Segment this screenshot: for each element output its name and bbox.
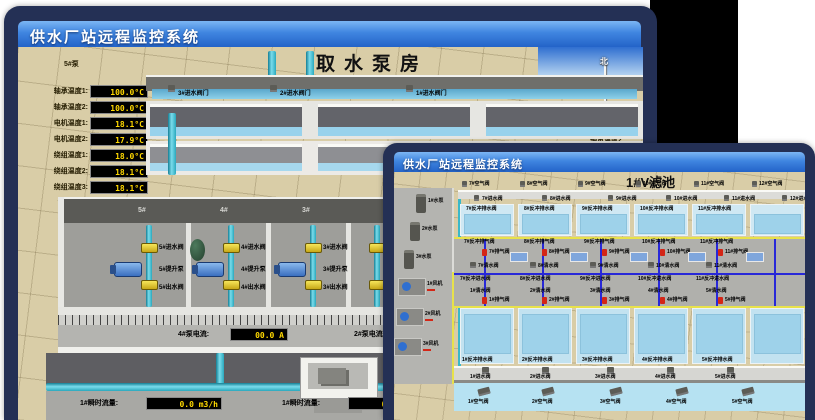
- air-valve-icon[interactable]: [462, 181, 467, 187]
- exhaust-lower-label: 4#排气阀: [667, 298, 688, 304]
- inlet-valve-label: 7#进水阀: [482, 197, 503, 203]
- filter-cell[interactable]: [576, 308, 630, 364]
- exhaust-valve-label: 7#排气阀: [489, 250, 510, 256]
- outlet-valve-icon[interactable]: [223, 280, 240, 290]
- gate-valve-icon[interactable]: [168, 85, 175, 92]
- exhaust-valve-icon[interactable]: [660, 249, 665, 256]
- bay-number: 5#: [138, 207, 146, 215]
- tank-icon: [570, 252, 588, 262]
- lift-pump-icon[interactable]: [278, 262, 306, 277]
- panel-row-value[interactable]: 100.0°C: [90, 85, 148, 98]
- air-valve-bottom-label: 3#空气阀: [600, 400, 621, 406]
- hall-pillar: [186, 223, 191, 307]
- backwash-exhaust-label: 10#反冲排气阀: [642, 240, 675, 246]
- compass-north-label: 北: [600, 56, 608, 67]
- air-valve-label: 12#空气阀: [759, 182, 782, 188]
- air-valve-bottom-label: 4#空气阀: [666, 400, 687, 406]
- hall-pillar: [346, 223, 351, 307]
- basin: [318, 104, 470, 127]
- panel-row-value[interactable]: 100.0°C: [90, 101, 148, 114]
- gallery-blue-riser: [774, 239, 776, 306]
- inlet-valve-icon[interactable]: [223, 243, 240, 253]
- inlet-valve-icon[interactable]: [141, 243, 158, 253]
- outlet-riser: [216, 353, 224, 387]
- gallery-yellow-pipe: [454, 237, 805, 239]
- exhaust-lower-icon[interactable]: [660, 297, 665, 304]
- inlet-valve-icon[interactable]: [782, 195, 787, 201]
- clean-water-lower-label: 1#清水阀: [470, 289, 491, 295]
- clean-water-valve-icon[interactable]: [706, 262, 712, 268]
- clean-water-valve-label: 9#清水阀: [598, 264, 619, 270]
- flow-readout-label: 1#瞬时流量:: [80, 400, 118, 408]
- filter-cell[interactable]: [750, 308, 804, 364]
- inlet-valve-icon[interactable]: [542, 195, 547, 201]
- lift-pump-icon[interactable]: [196, 262, 224, 277]
- blower-motor: [402, 282, 411, 291]
- backwash-exhaust-label: 11#反冲排气阀: [700, 240, 733, 246]
- exhaust-valve-label: 9#排气阀: [609, 250, 630, 256]
- tank-icon: [510, 252, 528, 262]
- panel-row-value[interactable]: 18.1°C: [90, 117, 148, 130]
- bay-pump-label: 4#提升泵: [241, 267, 266, 274]
- bay-number: 4#: [220, 207, 228, 215]
- panel-row-value[interactable]: 18.1°C: [90, 181, 148, 194]
- backwash-drain-bottom-label: 4#反冲排水阀: [642, 358, 673, 364]
- outlet-valve-icon[interactable]: [305, 280, 322, 290]
- panel-row-value[interactable]: 18.1°C: [90, 165, 148, 178]
- tank-icon: [688, 252, 706, 262]
- inlet-channel: [454, 380, 805, 411]
- clean-water-lower-label: 4#清水阀: [648, 289, 669, 295]
- standpipe: [306, 51, 314, 77]
- bay-pump-label: 5#提升泵: [159, 267, 184, 274]
- black-backdrop: [650, 0, 738, 146]
- flow-readout-value[interactable]: 0.0 m3/h: [146, 397, 222, 410]
- clean-water-valve-label: 8#清水阀: [538, 264, 559, 270]
- backwash-inlet-label: 7#反冲进水阀: [460, 277, 491, 283]
- current-readout-label: 2#泵电流:: [354, 331, 385, 339]
- pump-icon[interactable]: [410, 222, 420, 241]
- backwash-inlet-label: 8#反冲进水阀: [520, 277, 551, 283]
- backwash-exhaust-label: 8#反冲排气阀: [524, 240, 555, 246]
- front-window-titlebar[interactable]: 供水厂站远程监控系统: [394, 152, 805, 172]
- basin-water: [486, 127, 638, 136]
- bay-outlet-label: 4#出水阀: [241, 285, 266, 292]
- clean-water-valve-label: 10#清水阀: [656, 264, 679, 270]
- hall-pillar: [266, 223, 271, 307]
- blower-motor: [400, 312, 409, 321]
- panel-row-value[interactable]: 17.9°C: [90, 133, 148, 146]
- inlet-bottom-icon[interactable]: [542, 367, 549, 374]
- bay-inlet-label: 4#进水阀: [241, 245, 266, 252]
- backwash-drain-label: 11#反冲排水阀: [698, 207, 731, 213]
- backwash-drain-bottom-label: 2#反冲排水阀: [522, 358, 553, 364]
- inlet-valve-icon[interactable]: [666, 195, 671, 201]
- backwash-drain-label: 8#反冲排水阀: [524, 207, 555, 213]
- exhaust-lower-label: 5#排气阀: [725, 298, 746, 304]
- equipment-label: 1#风机: [427, 282, 443, 288]
- clean-water-lower-label: 5#清水阀: [706, 289, 727, 295]
- panel-row-label: 电机温度2:: [20, 136, 88, 144]
- backwash-drain-bottom-label: 3#反冲排水阀: [582, 358, 613, 364]
- exhaust-valve-label: 11#排气阀: [725, 250, 748, 256]
- status-indicator: [423, 349, 431, 351]
- inlet-valve-label: 10#进水阀: [674, 197, 697, 203]
- inlet-valve-icon[interactable]: [474, 195, 479, 201]
- intake-channel-water: [152, 89, 637, 99]
- filter-cell[interactable]: [518, 308, 572, 364]
- equipment-label: 1#水泵: [428, 199, 444, 205]
- blower-icon[interactable]: [398, 278, 426, 296]
- air-valve-bottom-label: 1#空气阀: [468, 400, 489, 406]
- outlet-valve-icon[interactable]: [141, 280, 158, 290]
- air-valve-icon[interactable]: [694, 181, 699, 187]
- blower-icon[interactable]: [396, 308, 424, 326]
- backwash-exhaust-label: 9#反冲排气阀: [584, 240, 615, 246]
- exhaust-valve-label: 8#排气阀: [549, 250, 570, 256]
- inlet-valve-label: 8#进水阀: [550, 197, 571, 203]
- basin-water: [318, 127, 470, 136]
- current-readout-value[interactable]: 00.0 A: [230, 328, 288, 341]
- equipment-label: 3#风机: [423, 342, 439, 348]
- clean-water-lower-label: 2#清水阀: [530, 289, 551, 295]
- air-valve-label: 11#空气阀: [701, 182, 724, 188]
- standpipe: [268, 51, 276, 77]
- status-indicator: [425, 319, 433, 321]
- inlet-valve-icon[interactable]: [724, 195, 729, 201]
- bay-pipe: [228, 225, 234, 307]
- inlet-bottom-icon[interactable]: [607, 367, 614, 374]
- basin: [486, 104, 638, 127]
- back-window-title: 供水厂站远程监控系统: [30, 29, 200, 46]
- clean-water-lower-label: 3#清水阀: [590, 289, 611, 295]
- filter-cell[interactable]: [750, 204, 804, 236]
- tank-icon: [630, 252, 648, 262]
- equipment-cabinet[interactable]: [300, 357, 378, 399]
- gallery-blue-pipe: [454, 273, 805, 275]
- air-valve-label: 9#空气阀: [585, 182, 606, 188]
- backwash-drain-bottom-label: 5#反冲排水阀: [702, 358, 733, 364]
- air-valve-bottom-label: 2#空气阀: [532, 400, 553, 406]
- bay-pump-label: 3#提升泵: [323, 267, 348, 274]
- air-valve-icon[interactable]: [636, 181, 641, 187]
- inlet-valve-icon[interactable]: [305, 243, 322, 253]
- backwash-drain-label: 9#反冲排水阀: [582, 207, 613, 213]
- flow-readout-label: 1#瞬时流量:: [282, 400, 320, 408]
- bay-number: 3#: [302, 207, 310, 215]
- air-valve-bottom-label: 5#空气阀: [732, 400, 753, 406]
- backwash-drain-bottom-label: 1#反冲排水阀: [462, 358, 493, 364]
- gate-valve-label: 3#进水阀门: [178, 91, 209, 98]
- air-valve-icon[interactable]: [520, 181, 525, 187]
- clean-water-valve-label: 7#清水阀: [478, 264, 499, 270]
- bay-pipe: [146, 225, 152, 307]
- clean-water-valve-icon[interactable]: [530, 262, 536, 268]
- clean-water-valve-icon[interactable]: [470, 262, 476, 268]
- panel-header: 5#泵: [64, 61, 79, 69]
- backwash-inlet-label: 9#反冲进水阀: [580, 277, 611, 283]
- inlet-valve-icon[interactable]: [608, 195, 613, 201]
- backwash-inlet-label: 11#反冲进水阀: [696, 277, 729, 283]
- air-valve-icon[interactable]: [752, 181, 757, 187]
- lift-pump-icon[interactable]: [114, 262, 142, 277]
- intake-basin-row: [146, 101, 643, 139]
- panel-row-value[interactable]: 18.0°C: [90, 149, 148, 162]
- backwash-exhaust-label: 7#反冲排气阀: [464, 240, 495, 246]
- equipment-label: 3#水泵: [416, 255, 432, 261]
- gate-valve-icon[interactable]: [270, 85, 277, 92]
- exhaust-valve-icon[interactable]: [482, 249, 487, 256]
- panel-row-label: 轴承温度2:: [20, 104, 88, 112]
- air-valve-label: 10#空气阀: [643, 182, 666, 188]
- blower-icon[interactable]: [394, 338, 422, 356]
- pump-icon[interactable]: [416, 194, 426, 213]
- inlet-valve-label: 9#进水阀: [616, 197, 637, 203]
- clean-water-valve-icon[interactable]: [648, 262, 654, 268]
- gate-valve-label: 2#进水阀门: [280, 91, 311, 98]
- cabinet-machine: [318, 368, 346, 384]
- filter-cell[interactable]: [634, 308, 688, 364]
- exhaust-valve-icon[interactable]: [718, 249, 723, 256]
- pump-icon[interactable]: [404, 250, 414, 269]
- scene-title: 取水泵房: [316, 49, 428, 76]
- inlet-bottom-icon[interactable]: [667, 367, 674, 374]
- exhaust-lower-label: 2#排气阀: [549, 298, 570, 304]
- exhaust-lower-icon[interactable]: [718, 297, 723, 304]
- air-valve-label: 7#空气阀: [469, 182, 490, 188]
- backwash-drain-label: 7#反冲排水阀: [466, 207, 497, 213]
- panel-row-label: 绕组温度1:: [20, 152, 88, 160]
- front-window: 供水厂站远程监控系统 1#V滤池 1#水泵 2#水泵 3#水泵 1#风机 2#风…: [383, 143, 815, 420]
- exhaust-valve-label: 10#排气阀: [667, 250, 690, 256]
- filter-cell[interactable]: [692, 308, 746, 364]
- panel-row-label: 轴承温度1:: [20, 88, 88, 96]
- clean-water-valve-icon[interactable]: [590, 262, 596, 268]
- blower-motor: [398, 342, 407, 351]
- tank-icon: [746, 252, 764, 262]
- bay-inlet-label: 5#进水阀: [159, 245, 184, 252]
- panel-row-label: 绕组温度3:: [20, 184, 88, 192]
- exhaust-lower-icon[interactable]: [542, 297, 547, 304]
- gate-valve-icon[interactable]: [406, 85, 413, 92]
- backwash-inlet-label: 10#反冲进水阀: [638, 277, 671, 283]
- exhaust-lower-label: 3#排气阀: [609, 298, 630, 304]
- inlet-valve-label: 12#进水阀: [790, 197, 805, 203]
- riser-pipe: [168, 113, 176, 175]
- current-readout-label: 4#泵电流:: [178, 331, 209, 339]
- bay-outlet-label: 5#出水阀: [159, 285, 184, 292]
- exhaust-valve-icon[interactable]: [542, 249, 547, 256]
- filter-scene: 1#V滤池 1#水泵 2#水泵 3#水泵 1#风机 2#风机 3#风机 7#空气…: [394, 172, 805, 420]
- back-window-titlebar[interactable]: 供水厂站远程监控系统: [18, 21, 641, 47]
- exhaust-lower-label: 1#排气阀: [489, 298, 510, 304]
- air-valve-label: 8#空气阀: [527, 182, 548, 188]
- backwash-drain-label: 10#反冲排水阀: [640, 207, 673, 213]
- equipment-label: 2#风机: [425, 312, 441, 318]
- inlet-bottom-icon[interactable]: [482, 367, 489, 374]
- filter-cell[interactable]: [460, 308, 514, 364]
- bay-outlet-label: 3#出水阀: [323, 285, 348, 292]
- exhaust-lower-icon[interactable]: [482, 297, 487, 304]
- clean-water-valve-label: 11#清水阀: [714, 264, 737, 270]
- inlet-bottom-icon[interactable]: [727, 367, 734, 374]
- exhaust-valve-icon[interactable]: [602, 249, 607, 256]
- equipment-label: 2#水泵: [422, 227, 438, 233]
- panel-row-label: 电机温度1:: [20, 120, 88, 128]
- front-window-title: 供水厂站远程监控系统: [403, 159, 523, 171]
- panel-row-label: 绕组温度2:: [20, 168, 88, 176]
- status-indicator: [427, 289, 435, 291]
- bay-pipe: [374, 225, 380, 307]
- desktop: 供水厂站远程监控系统 取水泵房 北 西 南 轴承温度1 轴承温度2: [0, 0, 815, 420]
- gate-valve-label: 1#进水阀门: [416, 91, 447, 98]
- air-valve-icon[interactable]: [578, 181, 583, 187]
- tank-icon[interactable]: [190, 239, 205, 261]
- exhaust-lower-icon[interactable]: [602, 297, 607, 304]
- bay-inlet-label: 3#进水阀: [323, 245, 348, 252]
- bay-pipe: [310, 225, 316, 307]
- inlet-valve-label: 11#进水阀: [732, 197, 755, 203]
